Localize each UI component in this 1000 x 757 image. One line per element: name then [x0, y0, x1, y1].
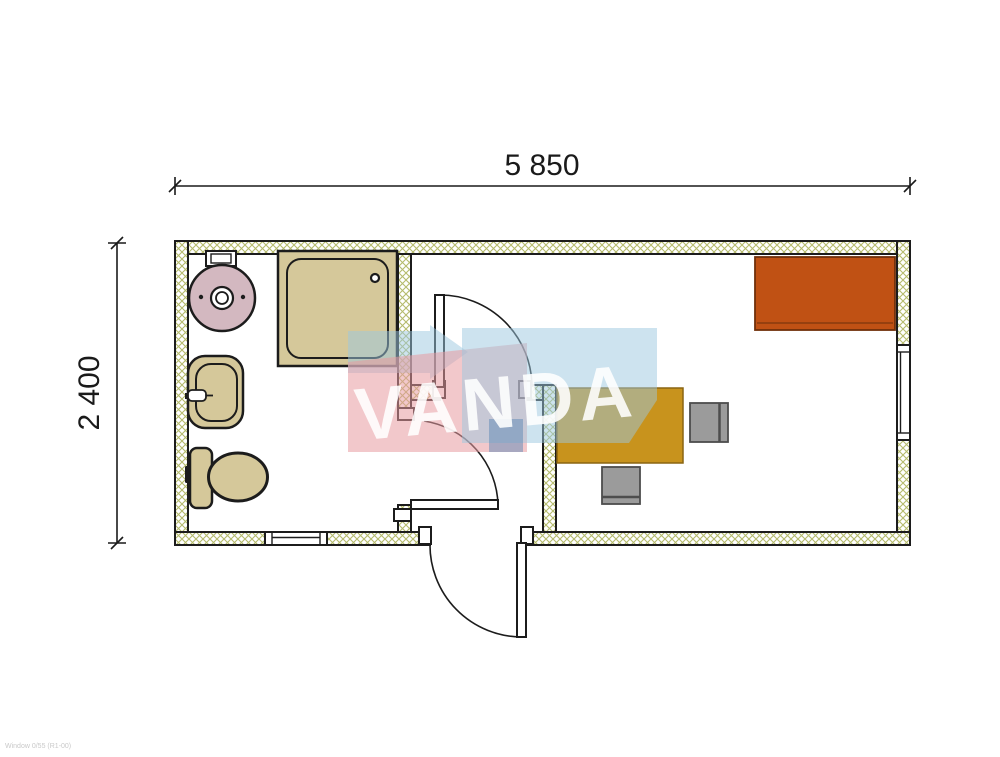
water-heater-bolt	[199, 295, 203, 299]
office-chair-1	[690, 403, 728, 442]
bathroom-door-jamb-bottom	[394, 509, 411, 521]
shower-drain	[371, 274, 379, 282]
office-chair-seat	[602, 467, 640, 504]
wall-bottom-left	[175, 532, 265, 545]
floor-plan-canvas: 5 850 2 400	[0, 0, 1000, 757]
cabinet	[755, 257, 895, 330]
width-dimension-label: 5 850	[504, 149, 579, 182]
office-chair-2	[602, 467, 640, 504]
entrance-door-swing-arc	[430, 543, 522, 637]
watermark: VANDA	[348, 325, 657, 456]
water-heater	[189, 251, 255, 331]
toilet-bowl	[209, 453, 268, 501]
footer-note: Window 0/55 (R1-00)	[5, 743, 71, 750]
washbasin-tap	[188, 390, 206, 401]
top-dimension: 5 850	[169, 149, 916, 195]
wall-right-upper	[897, 241, 910, 345]
water-heater-ring-inner	[216, 292, 228, 304]
entrance-door	[430, 543, 526, 637]
right-wall-window	[897, 345, 910, 440]
left-dimension: 2 400	[73, 237, 126, 549]
wall-bottom-right	[522, 532, 910, 545]
bathroom-door-leaf	[411, 500, 498, 509]
bottom-wall-window	[265, 532, 327, 545]
floor-plan-page: 5 850 2 400	[0, 0, 1000, 757]
entrance-door-jamb-left	[419, 527, 431, 544]
entrance-door-jamb-right	[521, 527, 533, 544]
toilet	[185, 448, 268, 508]
washbasin	[185, 356, 243, 428]
entrance-door-leaf	[517, 543, 526, 637]
height-dimension-label: 2 400	[73, 355, 106, 430]
wall-right-lower	[897, 440, 910, 545]
wall-bottom-middle	[327, 532, 430, 545]
office-chair-seat	[690, 403, 728, 442]
water-heater-bolt	[241, 295, 245, 299]
